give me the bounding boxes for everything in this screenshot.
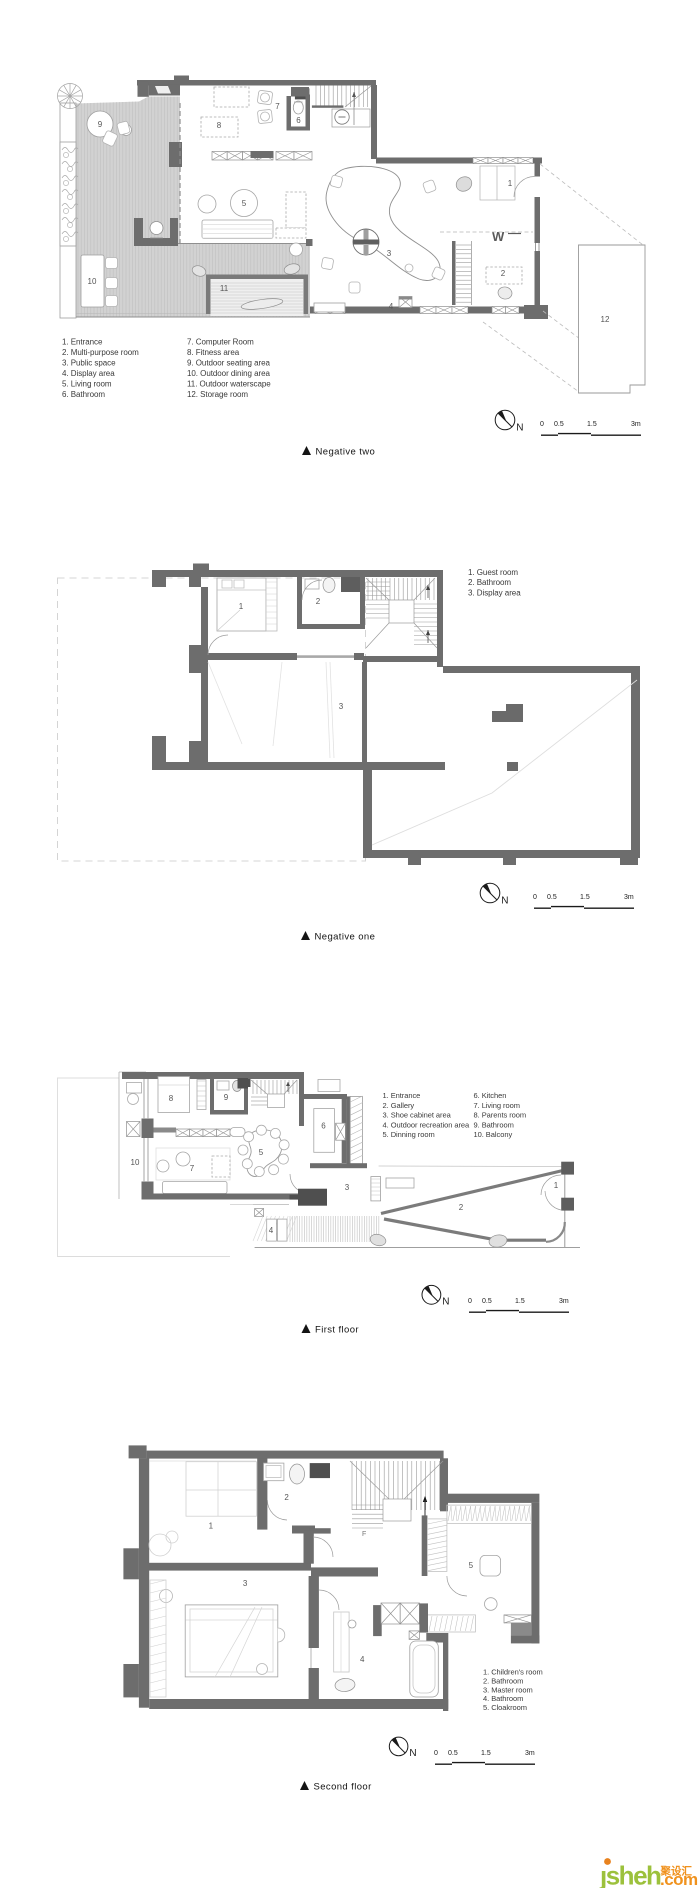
svg-text:2. Multi-purpose room: 2. Multi-purpose room [62, 348, 139, 357]
svg-text:10. Balcony: 10. Balcony [474, 1130, 513, 1139]
svg-text:5. Living room: 5. Living room [62, 379, 112, 388]
svg-text:1: 1 [554, 1181, 559, 1190]
svg-text:7: 7 [275, 102, 280, 111]
svg-text:2: 2 [459, 1203, 464, 1212]
svg-text:1.5: 1.5 [515, 1298, 525, 1305]
svg-text:0.5: 0.5 [547, 894, 557, 901]
svg-text:10: 10 [88, 277, 97, 286]
svg-text:4. Outdoor recreation area: 4. Outdoor recreation area [383, 1120, 471, 1129]
svg-text:3m: 3m [525, 1750, 535, 1757]
svg-text:Negative one: Negative one [315, 932, 376, 943]
svg-text:4. Display area: 4. Display area [62, 369, 115, 378]
svg-text:3: 3 [243, 1579, 248, 1588]
svg-text:6. Bathroom: 6. Bathroom [62, 390, 105, 399]
svg-text:8. Parents room: 8. Parents room [474, 1111, 527, 1120]
svg-text:5: 5 [259, 1148, 264, 1157]
svg-text:2: 2 [284, 1493, 289, 1502]
svg-text:7. Living room: 7. Living room [474, 1101, 520, 1110]
svg-text:3m: 3m [631, 421, 641, 428]
svg-text:4. Bathroom: 4. Bathroom [483, 1694, 523, 1703]
svg-text:N: N [409, 1748, 416, 1759]
svg-text:6. Kitchen: 6. Kitchen [474, 1091, 507, 1100]
svg-text:9: 9 [224, 1093, 229, 1102]
svg-text:1.5: 1.5 [580, 894, 590, 901]
svg-text:3: 3 [387, 249, 392, 258]
svg-text:1. Entrance: 1. Entrance [62, 338, 103, 347]
svg-text:7. Computer Room: 7. Computer Room [187, 338, 254, 347]
svg-text:2. Bathroom: 2. Bathroom [483, 1676, 523, 1685]
svg-text:0.5: 0.5 [482, 1298, 492, 1305]
svg-text:1: 1 [209, 1522, 214, 1531]
svg-text:2. Bathroom: 2. Bathroom [468, 578, 511, 587]
svg-text:1. Entrance: 1. Entrance [383, 1091, 421, 1100]
svg-text:Negative two: Negative two [316, 447, 376, 458]
svg-text:4: 4 [389, 302, 394, 311]
svg-text:1: 1 [508, 179, 513, 188]
svg-text:10: 10 [131, 1158, 140, 1167]
svg-text:1: 1 [239, 602, 244, 611]
svg-text:5: 5 [469, 1561, 474, 1570]
svg-text:3: 3 [339, 702, 344, 711]
svg-text:5. Dinning room: 5. Dinning room [383, 1130, 435, 1139]
svg-text:12. Storage room: 12. Storage room [187, 390, 248, 399]
svg-text:0: 0 [533, 894, 537, 901]
svg-text:6: 6 [321, 1122, 326, 1131]
svg-text:2: 2 [501, 269, 506, 278]
svg-text:4: 4 [360, 1655, 365, 1664]
svg-text:3. Public space: 3. Public space [62, 358, 116, 367]
svg-text:12: 12 [601, 315, 610, 324]
svg-text:1. Children's room: 1. Children's room [483, 1668, 543, 1677]
svg-text:3m: 3m [559, 1298, 569, 1305]
svg-text:Second floor: Second floor [314, 1782, 372, 1793]
svg-text:0.5: 0.5 [554, 421, 564, 428]
svg-text:9. Outdoor seating area: 9. Outdoor seating area [187, 358, 271, 367]
svg-text:8: 8 [217, 121, 222, 130]
svg-text:1. Guest room: 1. Guest room [468, 568, 518, 577]
svg-text:5. Cloakroom: 5. Cloakroom [483, 1703, 527, 1712]
svg-text:0: 0 [468, 1298, 472, 1305]
svg-text:0.5: 0.5 [448, 1750, 458, 1757]
svg-text:1.5: 1.5 [587, 421, 597, 428]
svg-text:N: N [516, 422, 523, 433]
svg-text:3. Display area: 3. Display area [468, 588, 521, 597]
svg-text:9: 9 [98, 120, 103, 129]
svg-text:6: 6 [296, 116, 301, 125]
svg-text:First floor: First floor [315, 1325, 359, 1336]
svg-text:11: 11 [220, 284, 229, 293]
svg-text:2: 2 [316, 597, 321, 606]
svg-text:N: N [442, 1297, 449, 1308]
svg-text:3: 3 [345, 1183, 350, 1192]
svg-text:W: W [492, 229, 505, 244]
svg-text:7: 7 [190, 1164, 195, 1173]
svg-text:3m: 3m [624, 894, 634, 901]
svg-text:F: F [362, 1531, 366, 1538]
svg-text:8. Fitness area: 8. Fitness area [187, 348, 240, 357]
svg-text:1.5: 1.5 [481, 1750, 491, 1757]
svg-text:9. Bathroom: 9. Bathroom [474, 1120, 514, 1129]
svg-text:4: 4 [269, 1226, 274, 1235]
svg-text:0: 0 [540, 421, 544, 428]
svg-text:11. Outdoor waterscape: 11. Outdoor waterscape [187, 379, 271, 388]
svg-text:聚设汇: 聚设汇 [660, 1865, 693, 1878]
svg-text:8: 8 [169, 1094, 174, 1103]
svg-text:5: 5 [242, 199, 247, 208]
svg-text:N: N [501, 895, 508, 906]
svg-text:3. Master room: 3. Master room [483, 1685, 533, 1694]
svg-text:2. Gallery: 2. Gallery [383, 1101, 415, 1110]
svg-text:10. Outdoor dining area: 10. Outdoor dining area [187, 369, 271, 378]
svg-text:3. Shoe cabinet area: 3. Shoe cabinet area [383, 1111, 452, 1120]
svg-text:0: 0 [434, 1750, 438, 1757]
